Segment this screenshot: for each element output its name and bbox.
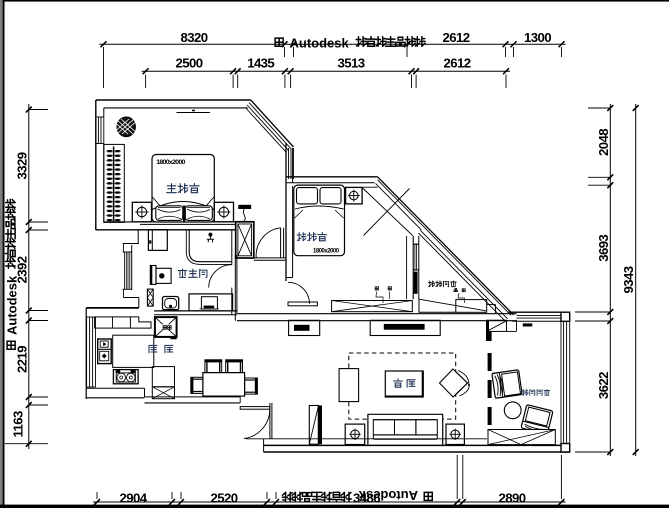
svg-text:9343: 9343	[621, 266, 636, 293]
svg-text:2048: 2048	[596, 129, 611, 156]
svg-text:2612: 2612	[443, 30, 470, 45]
svg-text:1800x2000: 1800x2000	[313, 248, 340, 254]
svg-text:2612: 2612	[444, 55, 471, 70]
svg-text:1435: 1435	[247, 55, 274, 70]
svg-text:1300: 1300	[524, 30, 551, 45]
svg-text:2520: 2520	[211, 491, 238, 506]
svg-text:1163: 1163	[11, 411, 26, 437]
svg-text:3329: 3329	[15, 152, 30, 179]
svg-text:8320: 8320	[181, 30, 208, 45]
svg-text:Autodesk: Autodesk	[290, 36, 350, 51]
svg-text:3513: 3513	[338, 55, 365, 70]
svg-text:3693: 3693	[596, 235, 611, 262]
svg-text:2904: 2904	[120, 491, 148, 506]
svg-text:3622: 3622	[596, 372, 611, 399]
svg-text:2219: 2219	[15, 346, 30, 373]
svg-text:2890: 2890	[499, 491, 526, 506]
svg-text:Autodesk: Autodesk	[358, 488, 418, 503]
svg-text:2500: 2500	[176, 55, 203, 70]
svg-text:1800x2000: 1800x2000	[156, 159, 185, 166]
svg-text:Autodesk: Autodesk	[5, 275, 20, 335]
